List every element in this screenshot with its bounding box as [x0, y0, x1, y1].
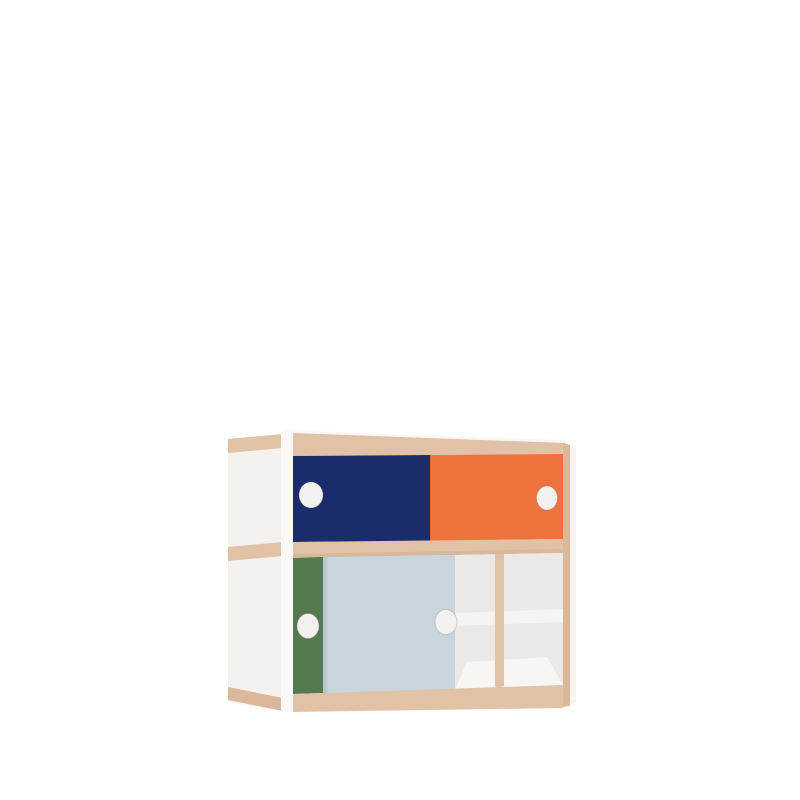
- front-left-corner-post: [281, 433, 293, 712]
- blue-door-handle-cutout: [435, 610, 457, 635]
- cabinet-render-canvas: [0, 0, 800, 800]
- open-compartment-divider-plywood-edge: [495, 554, 504, 689]
- open-compartment-floor: [455, 657, 563, 690]
- right-side-outer-sliver: [570, 445, 576, 706]
- bottom-door-gap-shadow: [323, 557, 327, 693]
- product-render: [0, 0, 800, 800]
- orange-door-handle-cutout: [537, 486, 558, 510]
- green-door-handle-cutout: [297, 614, 319, 639]
- front-right-plywood-edge: [563, 443, 570, 707]
- left-side-panel: [228, 434, 283, 711]
- navy-door-handle-cutout: [299, 482, 323, 508]
